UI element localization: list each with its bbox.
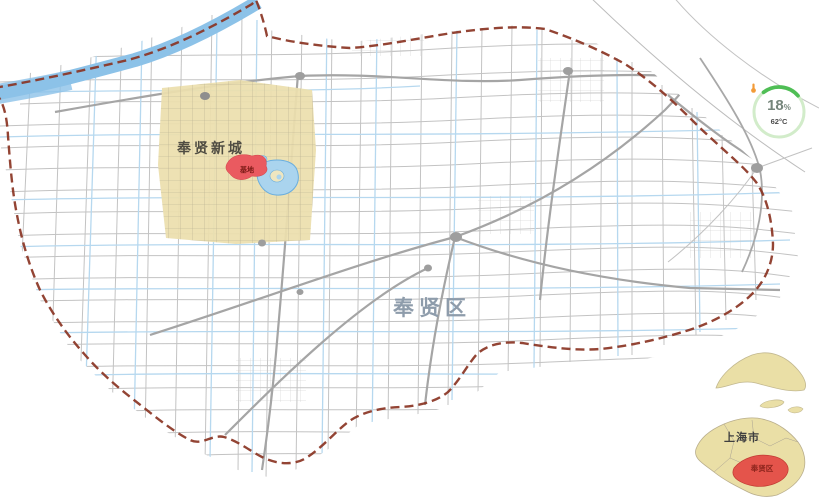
inset-changxing-island [760, 400, 784, 408]
inset-hengsha-island [788, 407, 803, 413]
inset-district-label: 奉贤区 [750, 463, 774, 473]
huangpu-river [0, 2, 258, 95]
badge-percent-sign: % [784, 103, 791, 112]
badge-temperature-value: 62°C [771, 117, 788, 126]
badge-temperature: 62°C [771, 117, 788, 126]
badge-percent: 18% [767, 98, 791, 115]
road-network [0, 10, 800, 480]
status-badge[interactable]: 18% 62°C [750, 83, 808, 141]
fengxian-district-map[interactable]: 基地 奉贤新城 奉贤区 18% 62°C [0, 0, 819, 504]
base-marker: 基地 [226, 155, 267, 180]
badge-percent-value: 18 [767, 97, 784, 114]
thermometer-icon [750, 83, 757, 93]
shanghai-inset-map: 上海市 奉贤区 [686, 346, 819, 504]
district-label: 奉贤区 [392, 296, 471, 320]
inset-city-label: 上海市 [724, 430, 760, 444]
inset-chongming-island [716, 353, 806, 391]
base-label: 基地 [239, 165, 254, 174]
new-city-label: 奉贤新城 [177, 140, 245, 156]
